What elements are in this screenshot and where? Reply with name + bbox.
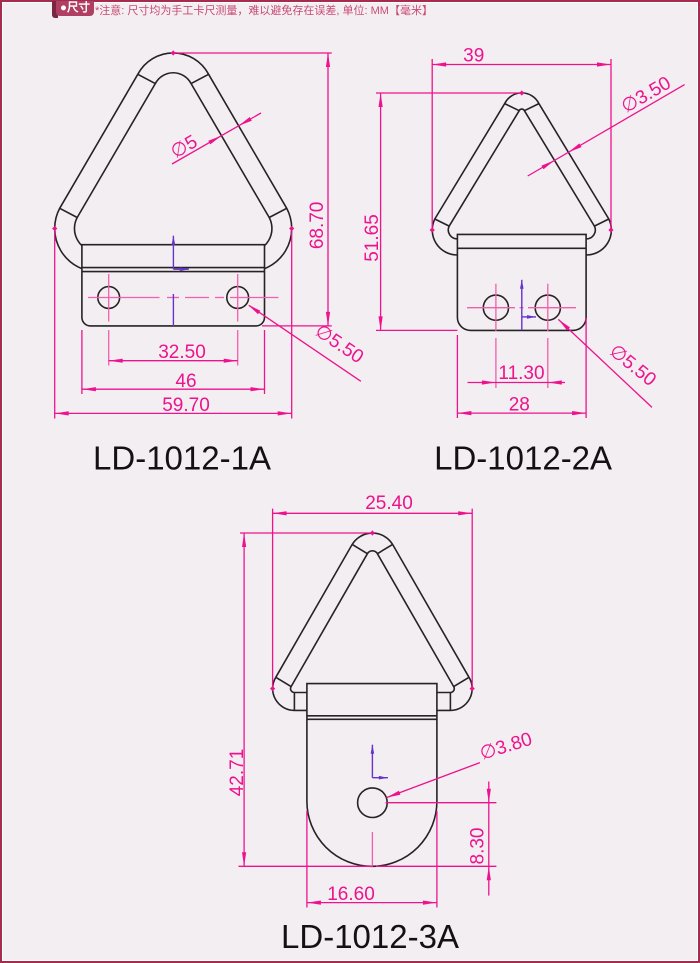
svg-text:8.30: 8.30: [468, 828, 489, 865]
svg-text:25.40: 25.40: [365, 493, 413, 514]
svg-text:11.30: 11.30: [498, 363, 544, 384]
svg-text:68.70: 68.70: [307, 202, 328, 250]
svg-text:∅5.50: ∅5.50: [605, 341, 660, 391]
svg-text:59.70: 59.70: [162, 395, 210, 416]
svg-text:51.65: 51.65: [362, 214, 383, 262]
svg-text:16.60: 16.60: [327, 884, 375, 905]
svg-text:42.71: 42.71: [227, 749, 248, 797]
svg-text:∅3.50: ∅3.50: [618, 73, 675, 118]
svg-text:28: 28: [509, 395, 530, 416]
svg-text:LD-1012-2A: LD-1012-2A: [434, 439, 612, 476]
svg-text:LD-1012-3A: LD-1012-3A: [281, 918, 459, 955]
svg-text:46: 46: [175, 371, 196, 392]
svg-text:39: 39: [463, 46, 484, 67]
svg-text:32.50: 32.50: [158, 342, 206, 363]
svg-text:∅5: ∅5: [167, 131, 201, 163]
svg-text:∅3.80: ∅3.80: [477, 729, 534, 765]
svg-text:∅5.50: ∅5.50: [311, 321, 367, 368]
svg-text:LD-1012-1A: LD-1012-1A: [93, 439, 271, 476]
